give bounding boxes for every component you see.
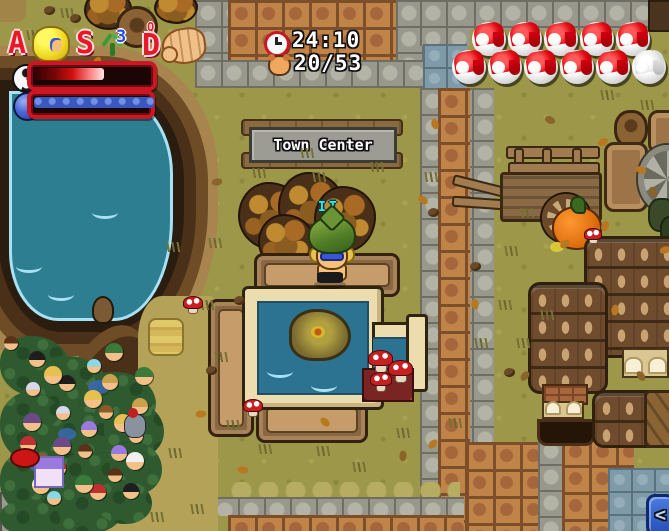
crowd-player-head bbox=[102, 374, 118, 390]
crowd-player-head bbox=[84, 390, 102, 408]
red-plume bbox=[128, 408, 138, 418]
crowd-player-head bbox=[108, 468, 122, 482]
life-orbs bbox=[0, 0, 669, 110]
crowd-player-head bbox=[26, 382, 40, 396]
crowd-player-head bbox=[23, 413, 41, 431]
life-orb-full bbox=[560, 50, 594, 84]
crowd-player-head bbox=[99, 405, 113, 419]
crowd-player-head bbox=[87, 359, 101, 373]
crowd-player-head bbox=[123, 483, 139, 499]
crowd-player-head bbox=[81, 421, 97, 437]
crowd-player-head bbox=[135, 367, 153, 385]
game-viewport: Town Center bbox=[0, 0, 669, 531]
life-orb-full bbox=[452, 50, 486, 84]
life-orb-empty bbox=[632, 50, 666, 84]
knight-player bbox=[124, 414, 146, 438]
crowd-player-head bbox=[75, 475, 93, 493]
crowd-player-head bbox=[44, 366, 62, 384]
life-orb-full bbox=[488, 50, 522, 84]
crowd-player-head bbox=[78, 444, 92, 458]
crowd-player-head bbox=[126, 452, 144, 470]
chat-toggle-label: < bbox=[655, 504, 666, 526]
life-orb-full bbox=[596, 50, 630, 84]
chat-toggle-button[interactable]: < bbox=[646, 494, 669, 531]
flower-patch-red bbox=[10, 448, 40, 468]
crowd-player-head bbox=[111, 445, 127, 461]
crowd-player-head bbox=[53, 437, 71, 455]
crowd-player-head bbox=[105, 343, 123, 361]
player-character: IT bbox=[300, 200, 360, 292]
crowd-player-head bbox=[56, 406, 70, 420]
life-orb-full bbox=[524, 50, 558, 84]
player-shorts bbox=[317, 272, 343, 283]
crowd-player-head bbox=[4, 336, 18, 350]
crowd-player-head bbox=[47, 491, 61, 505]
crowd-player-head bbox=[29, 351, 45, 367]
